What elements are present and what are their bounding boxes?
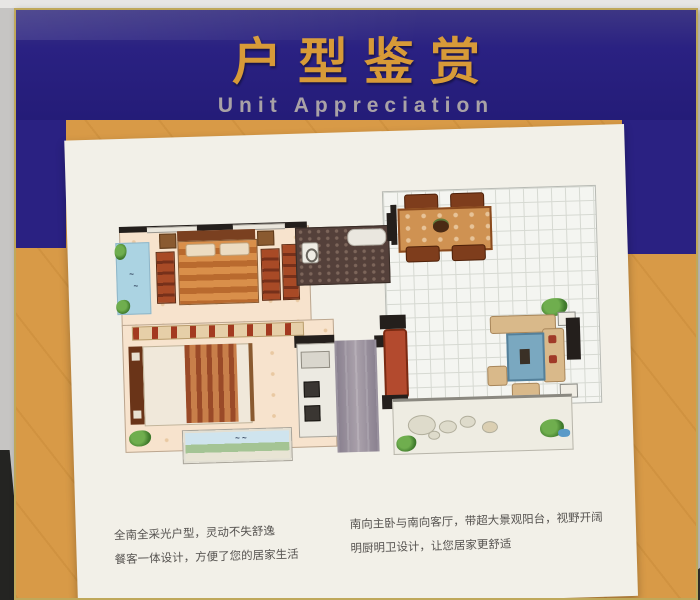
bay-window-view: ~ ~ <box>183 428 292 463</box>
wall-segment <box>387 213 396 241</box>
bird-decor: ~ <box>134 283 139 289</box>
pillow <box>219 242 249 256</box>
stove-burner <box>304 405 320 421</box>
stove-burner <box>304 381 320 397</box>
bird-decor: ~ <box>129 272 134 278</box>
bird-decor: ~ ~ <box>235 435 247 441</box>
description-right: 南向主卧与南向客厅，带超大景观阳台，视野开阔 明厨明卫设计，让您居家更舒适 <box>349 506 624 561</box>
shelf-box <box>133 410 141 418</box>
dresser <box>261 248 282 301</box>
shelf-box <box>132 352 140 360</box>
living-room-rug <box>506 332 545 381</box>
description-left: 全南全采光户型，灵动不失舒逸 餐客一体设计，方便了您的居家生活 <box>114 518 347 572</box>
plant-decor <box>114 244 126 260</box>
kitchen-sink <box>301 351 330 369</box>
armchair <box>487 366 508 387</box>
sofa-side <box>542 328 566 383</box>
rug-item <box>520 349 530 364</box>
second-bed <box>128 343 254 425</box>
pebble-decor <box>482 421 498 433</box>
dining-chair <box>452 244 486 261</box>
water-decor <box>558 429 570 437</box>
poster-subtitle: Unit Appreciation <box>16 94 696 118</box>
sofa-pillow <box>548 335 556 343</box>
kitchen-corridor-floor <box>334 339 379 452</box>
wall-segment <box>380 315 406 330</box>
pillow <box>185 243 215 257</box>
view-balcony <box>392 394 574 455</box>
side-balcony: ~ ~ <box>115 242 151 315</box>
nightstand <box>257 230 274 245</box>
nightstand <box>159 233 176 248</box>
glare-highlight <box>16 10 696 40</box>
sofa-pillow <box>549 355 557 363</box>
dining-chair <box>406 246 440 263</box>
toilet <box>301 242 319 263</box>
floorplan: ~ ~ <box>114 176 629 493</box>
unit-appreciation-poster: 户型鉴赏 Unit Appreciation <box>14 8 698 600</box>
pebble-decor <box>460 416 476 428</box>
poster-body: ~ ~ <box>16 120 696 598</box>
tv-cabinet <box>383 329 409 400</box>
blue-corner-right <box>622 120 696 254</box>
bathtub <box>347 228 386 246</box>
pebble-decor <box>428 431 440 440</box>
bed-blanket <box>184 344 238 424</box>
master-bed <box>177 229 257 303</box>
floorplan-card: ~ ~ <box>64 124 638 598</box>
wall-segment <box>566 317 581 359</box>
poster-header: 户型鉴赏 Unit Appreciation <box>16 10 696 120</box>
plant-decor <box>116 300 130 314</box>
dresser <box>156 251 177 304</box>
plant-decor <box>396 435 416 452</box>
pebble-decor <box>439 420 457 434</box>
blue-corner-left <box>16 120 66 248</box>
